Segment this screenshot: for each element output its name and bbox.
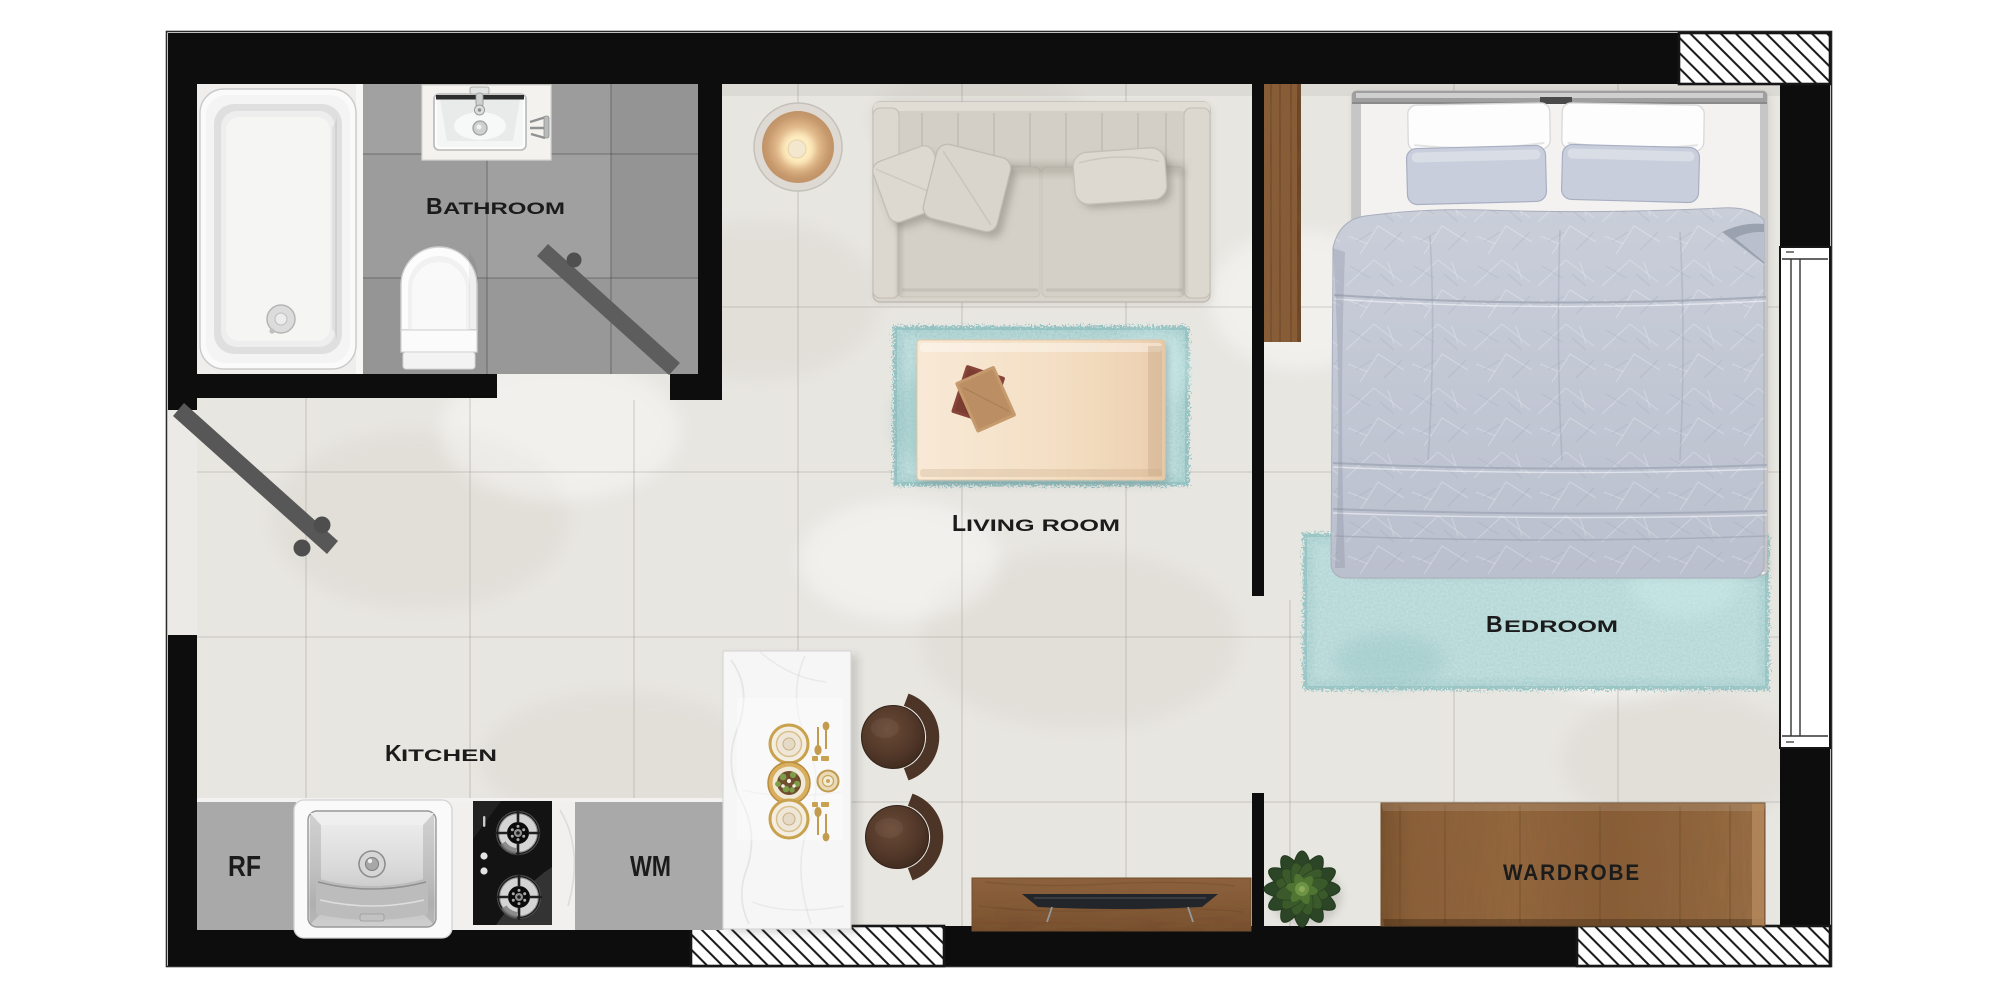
svg-text:B: B: [1486, 611, 1503, 637]
svg-text:RF: RF: [228, 851, 261, 883]
svg-text:L: L: [952, 510, 966, 536]
svg-text:EDROOM: EDROOM: [1504, 617, 1618, 636]
svg-text:IVING ROOM: IVING ROOM: [966, 516, 1120, 535]
svg-text:K: K: [385, 740, 402, 766]
svg-text:ITCHEN: ITCHEN: [401, 746, 497, 765]
svg-text:WM: WM: [630, 851, 671, 883]
svg-text:WARDROBE: WARDROBE: [1503, 860, 1641, 885]
svg-text:B: B: [426, 193, 443, 219]
svg-text:ATHROOM: ATHROOM: [443, 199, 565, 218]
